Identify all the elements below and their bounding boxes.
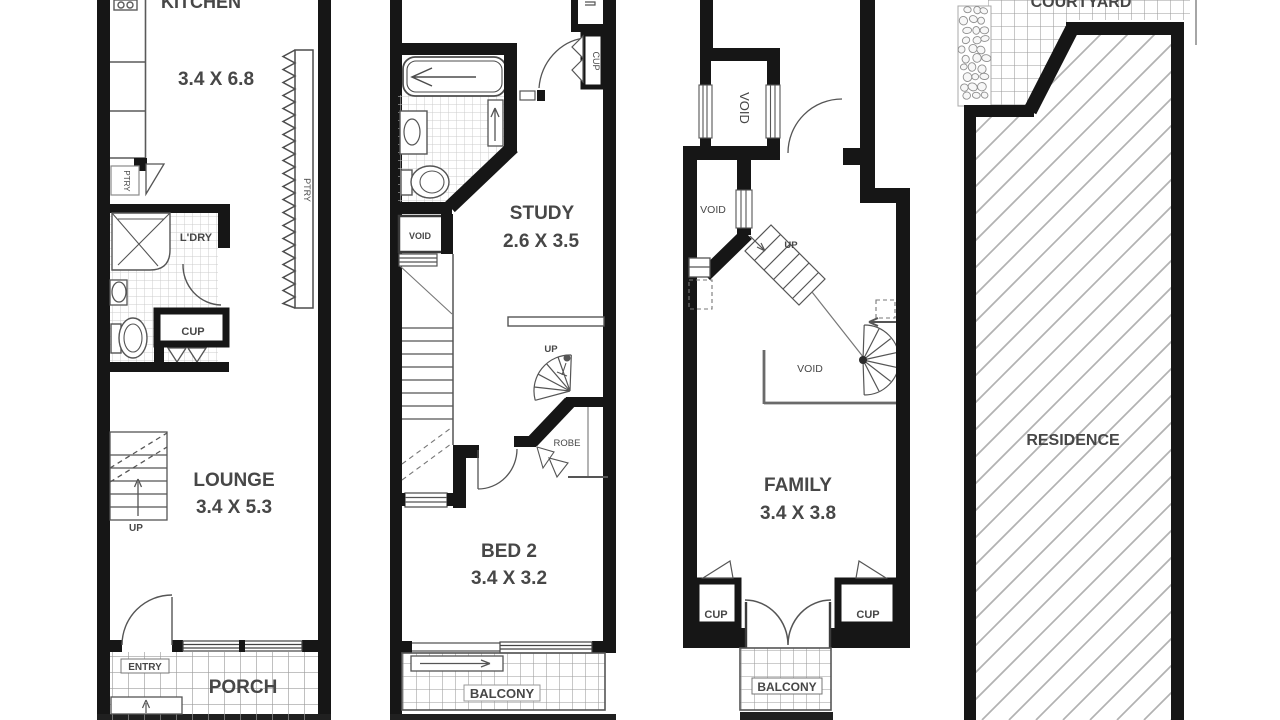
svg-text:BALCONY: BALCONY bbox=[757, 680, 816, 694]
svg-text:CUP: CUP bbox=[856, 609, 879, 621]
svg-text:FAMILY: FAMILY bbox=[764, 475, 832, 496]
svg-text:PORCH: PORCH bbox=[209, 677, 278, 698]
svg-text:UP: UP bbox=[784, 240, 798, 251]
svg-text:KITCHEN: KITCHEN bbox=[161, 0, 241, 12]
svg-text:VOID: VOID bbox=[409, 231, 432, 241]
svg-text:UP: UP bbox=[544, 344, 558, 355]
svg-text:COURTYARD: COURTYARD bbox=[1031, 0, 1132, 11]
svg-text:VOID: VOID bbox=[797, 363, 823, 375]
svg-text:RESIDENCE: RESIDENCE bbox=[1026, 432, 1120, 449]
svg-text:2.6 X 3.5: 2.6 X 3.5 bbox=[503, 231, 579, 252]
svg-text:CUP: CUP bbox=[181, 326, 204, 338]
svg-text:ENTRY: ENTRY bbox=[128, 662, 162, 673]
svg-text:3.4 X 5.3: 3.4 X 5.3 bbox=[196, 497, 272, 518]
svg-text:VOID: VOID bbox=[700, 204, 726, 216]
svg-text:3.4 X 3.8: 3.4 X 3.8 bbox=[760, 503, 836, 524]
svg-text:CUP: CUP bbox=[704, 609, 727, 621]
svg-text:PTRY: PTRY bbox=[122, 170, 131, 192]
svg-text:UP: UP bbox=[129, 523, 143, 534]
svg-text:LOUNGE: LOUNGE bbox=[193, 470, 274, 491]
svg-text:CUP: CUP bbox=[591, 51, 601, 70]
svg-text:ROBE: ROBE bbox=[554, 438, 581, 449]
svg-text:BALCONY: BALCONY bbox=[470, 686, 535, 701]
svg-text:PTRY: PTRY bbox=[302, 178, 312, 202]
svg-text:3.4 X 3.2: 3.4 X 3.2 bbox=[471, 568, 547, 589]
svg-text:BED 2: BED 2 bbox=[481, 541, 537, 562]
svg-text:L'DRY: L'DRY bbox=[180, 232, 213, 244]
svg-text:3.4 X 6.8: 3.4 X 6.8 bbox=[178, 69, 254, 90]
svg-text:VOID: VOID bbox=[737, 92, 752, 124]
svg-text:STUDY: STUDY bbox=[510, 203, 575, 224]
